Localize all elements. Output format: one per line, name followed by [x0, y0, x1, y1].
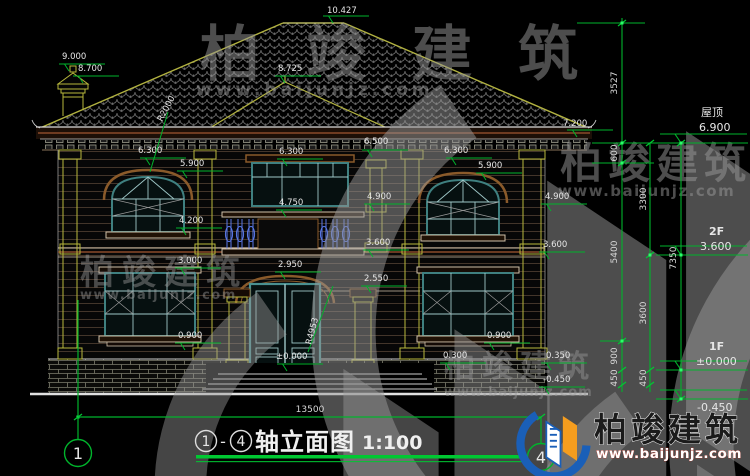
brand-url: www.baijunjz.com [596, 446, 742, 462]
marker-center-col-top: 4.900 [367, 192, 391, 202]
level-roof-label: 屋顶 [701, 106, 723, 119]
level-f2-label: 2F [709, 225, 724, 238]
marker-ridge-peak: 10.427 [327, 6, 357, 16]
watermark-brand: 柏竣建筑 [80, 253, 248, 293]
marker-center-eave-upper: 6.500 [364, 137, 388, 147]
title-underline-thick [196, 455, 525, 459]
marker-grade: -0.450 [543, 375, 570, 385]
level-f2-value: 3.600 [700, 240, 732, 253]
title-axis-separator: - [220, 432, 226, 451]
marker-balcony-rail: 4.750 [279, 198, 303, 208]
marker-left-sill-2f: 4.200 [179, 216, 203, 226]
watermark-brand: 柏竣建筑 [560, 139, 750, 188]
marker-left-sill-1f: 0.900 [178, 331, 202, 341]
marker-right-eave: 7.200 [563, 119, 587, 129]
dim-eave-to-sill: 5400 [610, 240, 620, 263]
dim-roof-to-eave: 600 [610, 144, 620, 161]
marker-left-arch-top: 5.900 [180, 159, 204, 169]
dim-total-width: 13500 [296, 405, 325, 415]
marker-door-threshold: ±0.000 [276, 352, 307, 362]
axis-bubble-right-label: 4 [536, 448, 546, 467]
title-axis-start: 1 [202, 434, 211, 450]
dim-roof-to-f2: 3300 [639, 187, 649, 210]
balcony-panel [258, 219, 318, 249]
axis-bubble-left-label: 1 [73, 444, 83, 463]
marker-chimney-cap: 8.700 [78, 64, 102, 74]
dim-total-height: 7350 [669, 246, 679, 269]
dim-ridge-to-roof: 3527 [610, 72, 620, 95]
marker-porch-beam: 2.550 [364, 274, 388, 284]
marker-center-f2: 3.600 [366, 238, 390, 248]
window-sill [106, 232, 190, 238]
marker-right-arch-top: 5.900 [478, 161, 502, 171]
dim-f1-to-grade-a: 450 [610, 369, 620, 386]
marker-right-wing-eave: 6.300 [444, 146, 468, 156]
window-sill [421, 235, 505, 241]
dim-sill-to-f1: 900 [610, 347, 620, 364]
marker-right-plinth: 0.350 [546, 351, 570, 361]
marker-center-ridge: 8.725 [278, 64, 302, 74]
watermark-url: www.baijunjz.com [196, 80, 434, 100]
marker-left-win-top-1f: 3.000 [178, 256, 202, 266]
marker-chimney-top: 9.000 [62, 52, 86, 62]
marker-door-arch-top: 2.950 [278, 260, 302, 270]
marker-right-col-top: 4.900 [545, 192, 569, 202]
cad-elevation-screenshot: 柏竣建筑 www.baijunjz.com 柏竣建筑 www.baijunjz.… [0, 0, 750, 476]
brand-name: 柏竣建筑 [594, 410, 742, 449]
title-axis-end: 4 [237, 434, 246, 450]
elevation-drawing: 柏竣建筑 www.baijunjz.com 柏竣建筑 www.baijunjz.… [0, 0, 750, 476]
title-underline-thin [196, 461, 525, 462]
dentil-row [42, 140, 587, 149]
marker-porch-plinth: 0.300 [443, 351, 467, 361]
marker-right-f2: 3.600 [543, 240, 567, 250]
dim-f1-to-grade-b: 450 [639, 369, 649, 386]
level-roof-value: 6.900 [699, 121, 731, 134]
marker-center-eave: 6.300 [279, 147, 303, 157]
watermark-url: www.baijunjz.com [80, 288, 237, 303]
dim-f2-to-f1: 3600 [639, 301, 649, 324]
level-f1-value: ±0.000 [696, 355, 737, 368]
marker-left-eave: 6.300 [138, 146, 162, 156]
title-scale: 1:100 [362, 432, 422, 454]
marker-right-sill-1f: 0.900 [487, 331, 511, 341]
level-f1-label: 1F [709, 340, 724, 353]
title-text: 轴立面图 [255, 428, 355, 456]
